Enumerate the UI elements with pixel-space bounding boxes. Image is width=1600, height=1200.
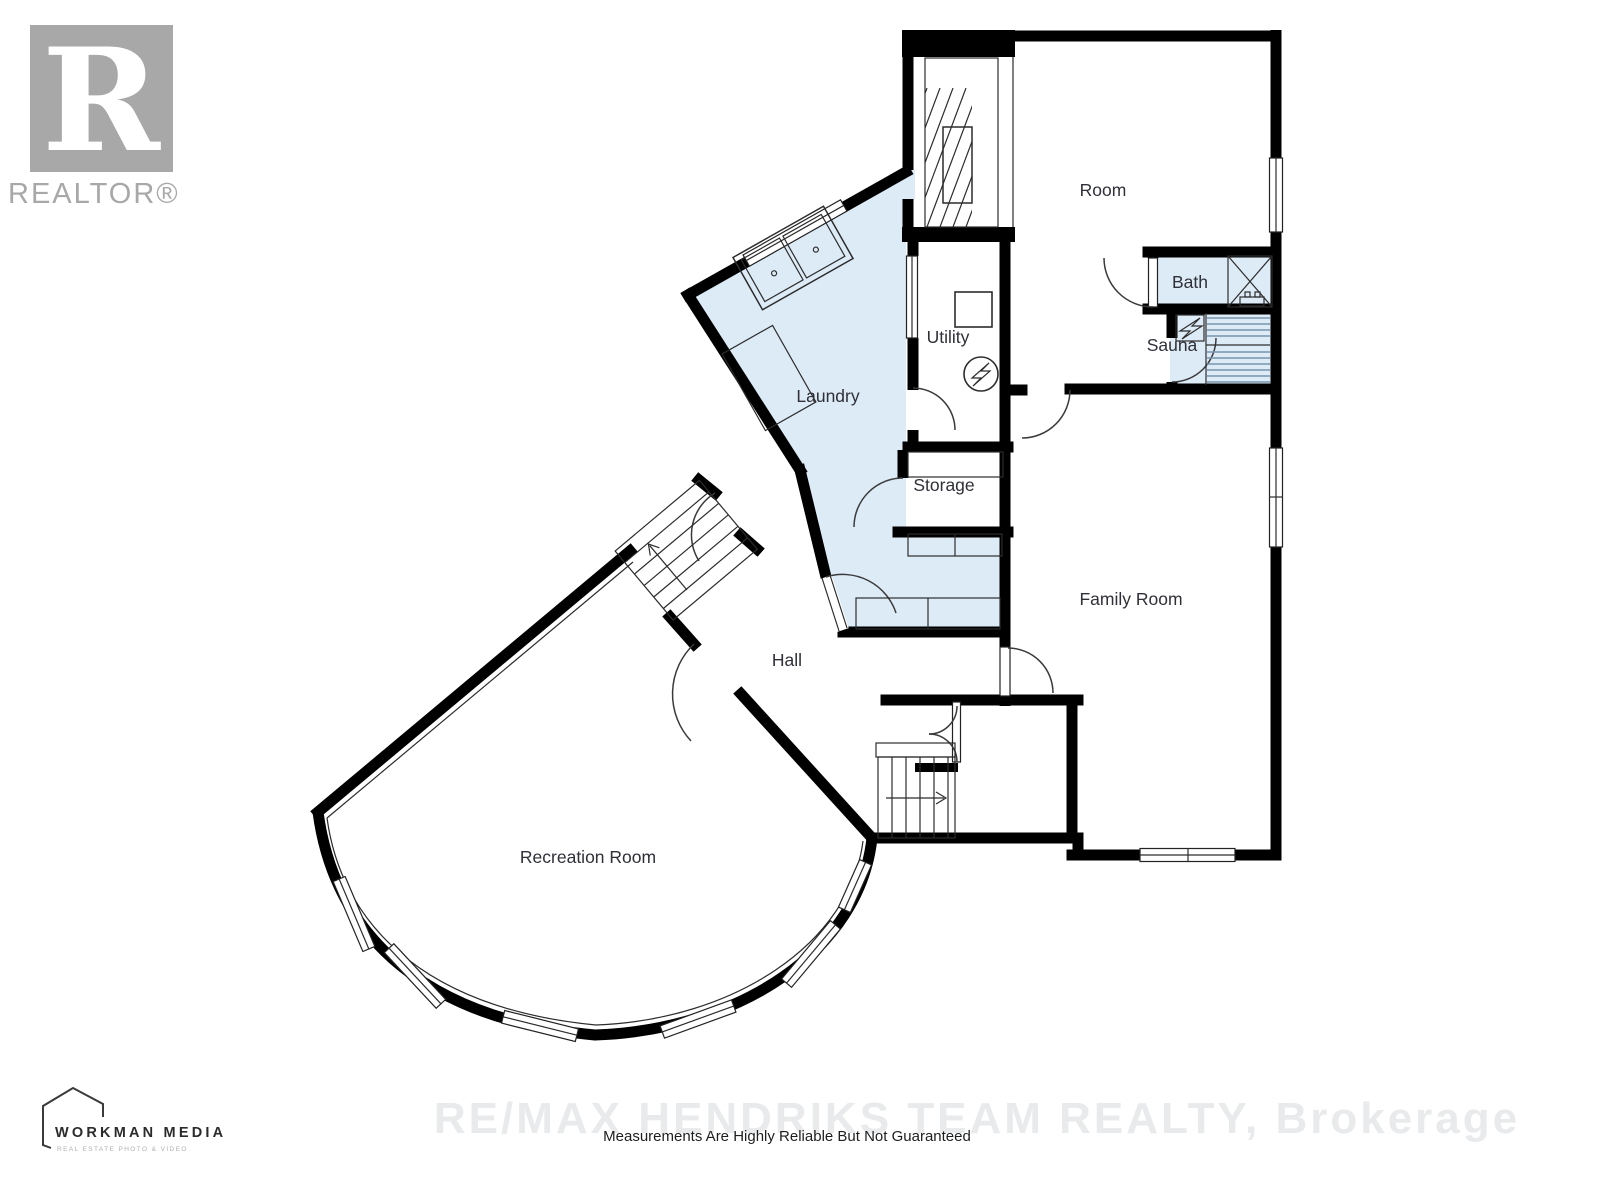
window-utility-left (907, 256, 918, 338)
room-label-family-room: Family Room (1079, 589, 1182, 609)
room-label-bath: Bath (1172, 272, 1208, 292)
window-bay-3 (502, 1011, 579, 1042)
stairs-direction-arrow-icon (886, 792, 946, 804)
workman-name: WORKMAN MEDIA (55, 1125, 226, 1141)
realtor-wordmark: REALTOR® (8, 178, 180, 210)
family-room-top-door (1022, 390, 1070, 438)
family-room-hall-door (1000, 647, 1053, 696)
room-label-hall: Hall (772, 650, 802, 670)
recreation-room-door (673, 644, 694, 741)
realtor-logo-letter: R (42, 18, 161, 184)
window-bay-5 (782, 921, 841, 988)
room-label-room: Room (1080, 180, 1127, 200)
storage-shelf (908, 452, 1003, 477)
window-room-right (1270, 158, 1283, 232)
room-label-utility: Utility (927, 327, 970, 347)
room-label-sauna: Sauna (1147, 335, 1198, 355)
window-bay-4 (660, 1000, 736, 1038)
window-bay-2 (384, 944, 445, 1008)
realtor-logo: R REALTOR® (8, 18, 180, 210)
brokerage-watermark: RE/MAX HENDRIKS TEAM REALTY, Brokerage (434, 1094, 1520, 1143)
electrical-panel-icon (964, 357, 998, 391)
window-family-bottom (1140, 849, 1235, 862)
utility-door (913, 388, 955, 430)
room-label-recreation-room: Recreation Room (520, 847, 656, 867)
window-family-right (1270, 448, 1283, 547)
measurement-disclaimer: Measurements Are Highly Reliable But Not… (603, 1128, 971, 1145)
water-heater-icon (955, 292, 992, 327)
bath-door (1104, 258, 1158, 307)
stairs-lower (876, 743, 955, 838)
room-label-storage: Storage (913, 475, 974, 495)
closet-bifold-doors (915, 702, 961, 772)
bath-floor (1150, 250, 1274, 309)
walls (318, 30, 1276, 1035)
floor-plan-canvas: Room Bath Sauna Utility Laundry Storage … (0, 0, 1600, 1200)
window-bay-1 (333, 876, 375, 951)
workman-tagline: REAL ESTATE PHOTO & VIDEO (57, 1146, 188, 1153)
room-label-laundry: Laundry (796, 386, 859, 406)
workman-logo: WORKMAN MEDIA REAL ESTATE PHOTO & VIDEO (43, 1088, 226, 1153)
